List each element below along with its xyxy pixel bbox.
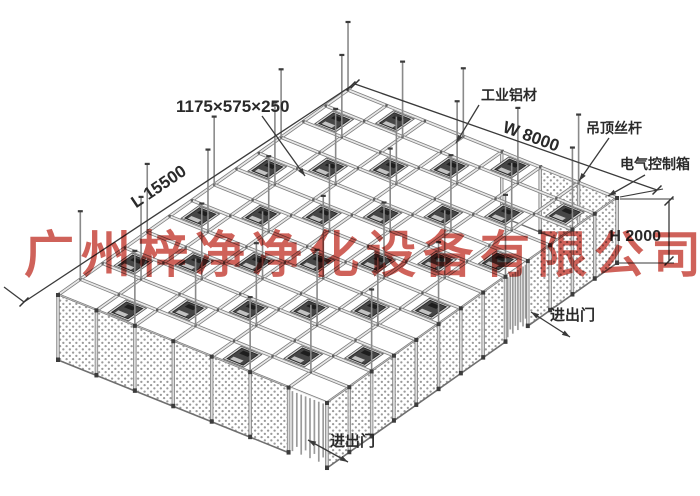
- label-ceiling-hanger-rod: 吊顶丝杆: [586, 118, 642, 138]
- label-door-bottom: 进出门: [330, 430, 375, 451]
- end-wall: [56, 293, 329, 470]
- clean-booth-technical-drawing: 1175×575×250 L 15500 W 8000 工业铝材 吊顶丝杆 电气…: [0, 0, 700, 496]
- label-electrical-control-box: 电气控制箱: [620, 154, 690, 174]
- label-door-right: 进出门: [550, 304, 595, 325]
- label-industrial-aluminum: 工业铝材: [481, 85, 537, 105]
- label-module-size: 1175×575×250: [176, 97, 289, 117]
- company-watermark: 广州梓净净化设备有限公司: [24, 215, 700, 287]
